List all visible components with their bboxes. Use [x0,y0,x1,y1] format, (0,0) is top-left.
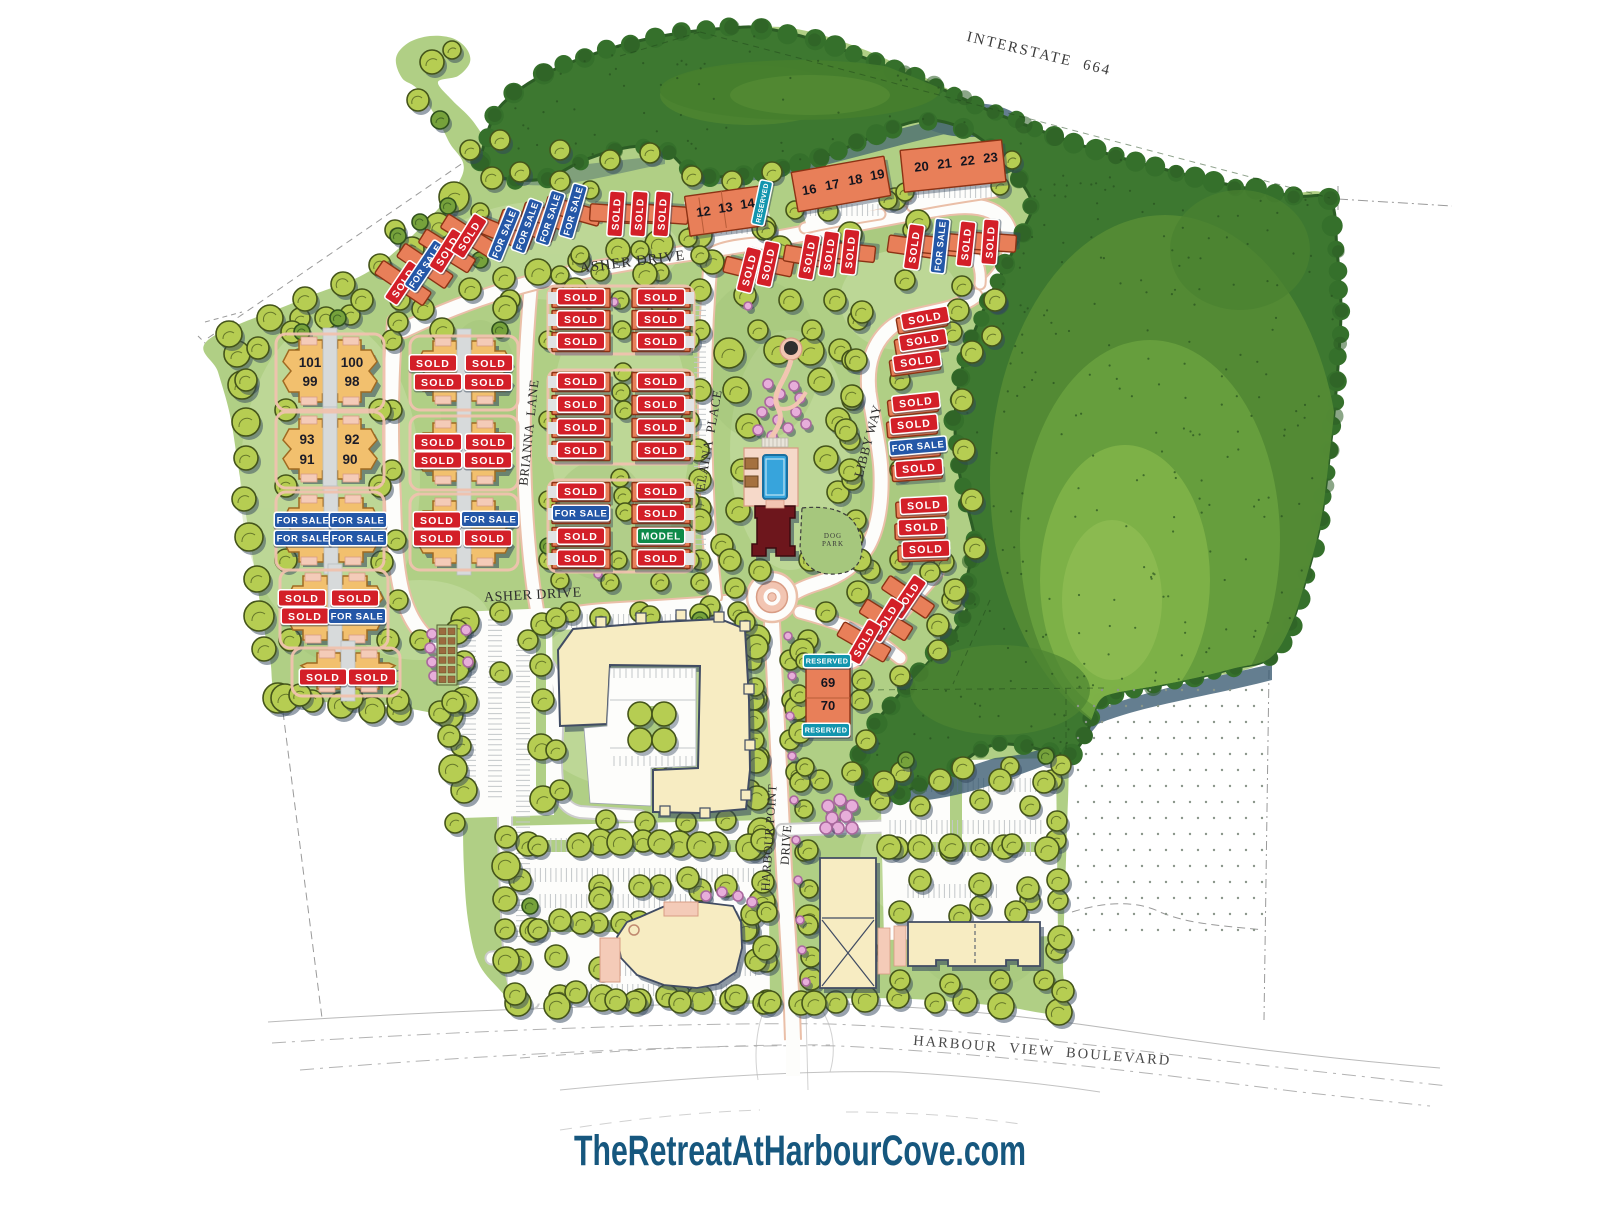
svg-text:18: 18 [847,171,864,188]
svg-text:21: 21 [937,155,953,171]
svg-text:FOR SALE: FOR SALE [555,508,608,519]
svg-text:SOLD: SOLD [421,437,455,449]
svg-text:SOLD: SOLD [564,399,598,411]
svg-text:TheRetreatAtHarbourCove.com: TheRetreatAtHarbourCove.com [574,1127,1026,1175]
svg-text:SOLD: SOLD [644,314,678,326]
svg-text:SOLD: SOLD [564,553,598,565]
svg-text:SOLD: SOLD [905,521,939,534]
svg-text:SOLD: SOLD [355,672,389,684]
svg-text:SOLD: SOLD [285,593,319,605]
svg-text:SOLD: SOLD [564,314,598,326]
svg-text:90: 90 [342,452,357,467]
svg-text:SOLD: SOLD [644,508,678,520]
svg-text:FOR SALE: FOR SALE [332,533,385,544]
svg-text:SOLD: SOLD [633,197,646,230]
svg-text:SOLD: SOLD [564,292,598,304]
svg-text:SOLD: SOLD [644,486,678,498]
svg-text:SOLD: SOLD [420,515,454,527]
svg-text:70: 70 [821,698,835,713]
svg-text:SOLD: SOLD [472,358,506,370]
svg-text:SOLD: SOLD [472,437,506,449]
svg-text:SOLD: SOLD [984,225,997,258]
svg-text:SOLD: SOLD [306,672,340,684]
svg-text:SOLD: SOLD [564,376,598,388]
svg-text:SOLD: SOLD [644,292,678,304]
svg-text:12: 12 [695,203,711,220]
svg-text:MODEL: MODEL [641,532,681,543]
svg-text:91: 91 [299,452,315,467]
svg-text:SOLD: SOLD [656,197,669,230]
svg-text:19: 19 [869,166,886,183]
svg-text:HARBOUR VIEW BOULEVARD: HARBOUR VIEW BOULEVARD [913,1033,1172,1069]
svg-text:DOG: DOG [824,532,842,540]
svg-text:SOLD: SOLD [644,399,678,411]
svg-text:SOLD: SOLD [471,455,505,467]
svg-text:SOLD: SOLD [564,336,598,348]
svg-text:FOR SALE: FOR SALE [332,515,385,526]
svg-text:SOLD: SOLD [644,553,678,565]
svg-text:SOLD: SOLD [471,533,505,545]
svg-text:SOLD: SOLD [644,336,678,348]
svg-text:SOLD: SOLD [610,197,623,230]
svg-text:13: 13 [717,199,733,216]
svg-text:SOLD: SOLD [909,543,943,556]
svg-text:23: 23 [983,149,999,165]
svg-text:98: 98 [344,374,360,389]
svg-text:17: 17 [824,176,841,193]
svg-text:SOLD: SOLD [421,455,455,467]
svg-text:22: 22 [960,152,976,168]
svg-text:FOR SALE: FOR SALE [464,514,517,525]
svg-text:SOLD: SOLD [421,377,455,389]
svg-text:DRIVE: DRIVE [778,824,795,866]
svg-text:SOLD: SOLD [338,593,372,605]
svg-text:SOLD: SOLD [420,533,454,545]
svg-text:RESERVED: RESERVED [805,726,848,735]
svg-text:101: 101 [299,355,322,370]
svg-text:SOLD: SOLD [907,499,942,513]
svg-text:SOLD: SOLD [564,422,598,434]
svg-text:FOR SALE: FOR SALE [277,515,330,526]
svg-text:16: 16 [801,181,818,198]
svg-text:FOR SALE: FOR SALE [331,611,384,622]
svg-text:SOLD: SOLD [564,445,598,457]
svg-text:SOLD: SOLD [902,462,937,476]
svg-text:69: 69 [821,675,835,690]
svg-text:SOLD: SOLD [288,611,322,623]
svg-text:99: 99 [302,374,317,389]
svg-text:FOR SALE: FOR SALE [277,533,330,544]
svg-text:14: 14 [739,195,756,212]
svg-text:SOLD: SOLD [471,377,505,389]
svg-text:SOLD: SOLD [564,486,598,498]
svg-text:SOLD: SOLD [644,445,678,457]
svg-text:SOLD: SOLD [644,376,678,388]
svg-text:SOLD: SOLD [416,358,450,370]
svg-text:PARK: PARK [822,540,844,548]
svg-text:RESERVED: RESERVED [806,657,849,666]
svg-text:20: 20 [914,158,930,174]
svg-text:100: 100 [341,355,364,370]
svg-text:SOLD: SOLD [564,531,598,543]
svg-text:92: 92 [344,432,359,447]
svg-text:INTERSTATE 664: INTERSTATE 664 [965,29,1113,79]
svg-text:93: 93 [299,432,315,447]
svg-text:SOLD: SOLD [644,422,678,434]
